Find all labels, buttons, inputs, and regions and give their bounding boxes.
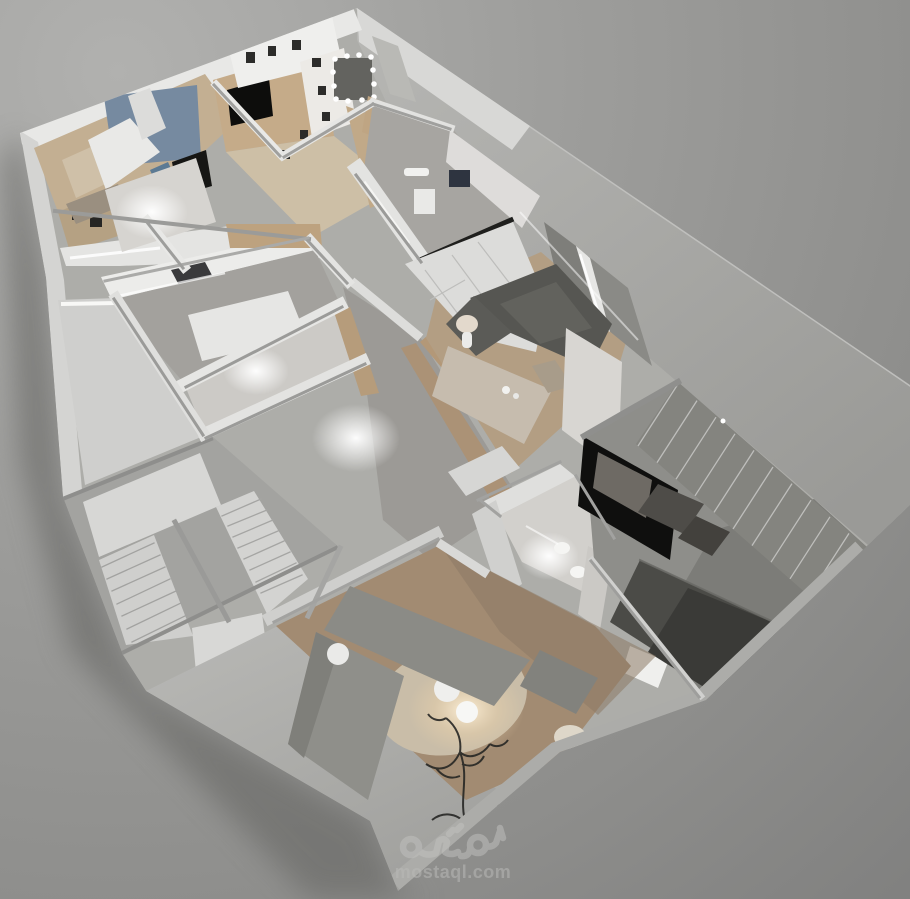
svg-text:mostaql.com: mostaql.com [395, 862, 512, 882]
